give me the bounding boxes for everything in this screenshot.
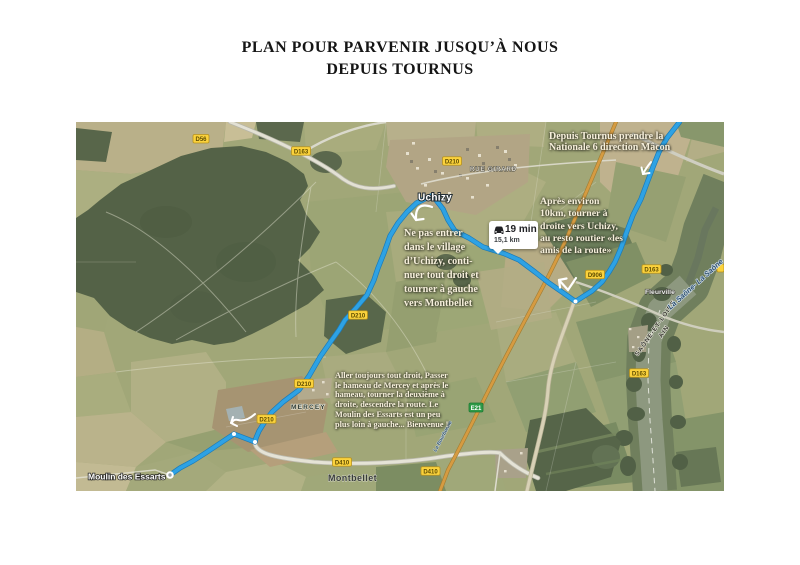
svg-text:Montbellet: Montbellet: [328, 473, 377, 483]
svg-text:D210: D210: [445, 159, 460, 165]
svg-text:RUE GIRARD: RUE GIRARD: [470, 167, 517, 173]
svg-text:D163: D163: [644, 267, 659, 273]
svg-text:D56: D56: [195, 137, 207, 143]
svg-text:D210: D210: [259, 417, 274, 423]
svg-text:D210: D210: [297, 382, 312, 388]
svg-text:D906: D906: [588, 273, 603, 279]
svg-text:D163: D163: [294, 149, 309, 155]
svg-text:Moulin des Essarts: Moulin des Essarts: [88, 472, 166, 482]
svg-text:Fleurville: Fleurville: [645, 289, 675, 296]
svg-text:D410: D410: [335, 460, 350, 466]
svg-text:E21: E21: [471, 406, 482, 412]
svg-text:MERCEY: MERCEY: [291, 404, 326, 411]
svg-text:Uchizy: Uchizy: [418, 193, 452, 204]
svg-text:D410: D410: [423, 469, 438, 475]
svg-text:D210: D210: [351, 313, 366, 319]
svg-text:D163: D163: [632, 371, 647, 377]
